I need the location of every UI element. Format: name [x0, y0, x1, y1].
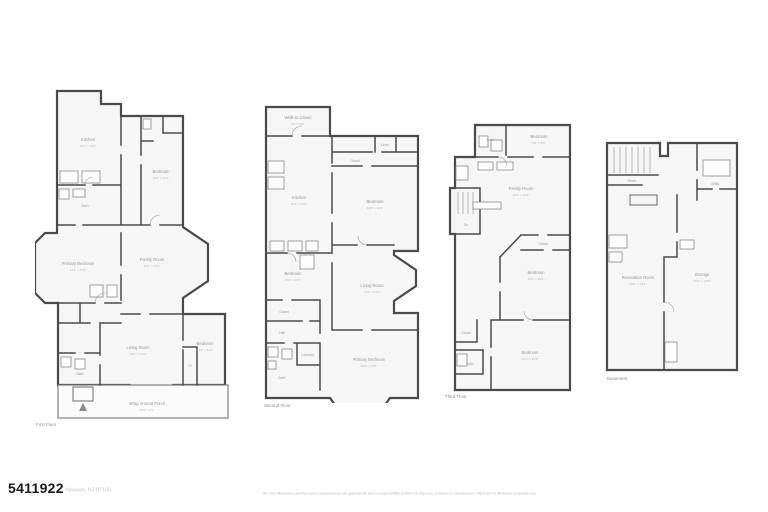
room-dims-porch: 32'0" x 6'4": [139, 408, 154, 412]
room-label-hall: Hall: [279, 331, 285, 335]
room-label-stairs3: Dn: [464, 223, 468, 227]
room-dims-bedroom-top3: 9'2" x 8'6": [532, 141, 546, 145]
room-label-laundry: Laundry: [302, 353, 315, 357]
room-label-utility: Utility: [711, 182, 720, 186]
room-dims-bedroom-l: 9'6" x 10'2": [285, 278, 300, 282]
room-label-porch: Wrap Around Porch: [129, 401, 166, 406]
disclaimer-text: All room dimensions and floor plan measu…: [263, 492, 513, 496]
floorplan-sheet: Kitchen 12'4" x 11'8" Bedroom 11'6" x 12…: [0, 0, 768, 512]
address-text: Newark, NJ 07106: [66, 487, 111, 493]
room-dims-living: 13'4" x 12'0": [130, 352, 147, 356]
room-dims-primary: 14'1" x 11'3": [70, 268, 87, 272]
room-label-closet2: Closet: [279, 310, 289, 314]
room-dims-kitchen: 12'4" x 11'8": [80, 144, 97, 148]
room-label-living2: Living Room: [360, 283, 384, 288]
room-label-family3: Family Room: [509, 186, 534, 191]
room-dims-wic: 8'2" x 5'6": [291, 122, 305, 126]
room-label-closet: Cl: [188, 364, 191, 368]
mls-number: 5411922: [8, 480, 64, 496]
room-label-bedroom-mid: Bedroom: [528, 270, 546, 275]
room-dims-living2: 14'6" x 13'2": [364, 290, 381, 294]
room-label-linen: Linen: [381, 143, 389, 147]
room-label-family: Family Room: [140, 257, 165, 262]
room-label-storage: Storage: [695, 272, 710, 277]
room-label-bath: Bath: [82, 204, 89, 208]
room-label-closet-bl: Closet: [461, 331, 471, 335]
room-label-kitchen2: Kitchen: [292, 195, 307, 200]
room-label-stairs-b: Stairs: [628, 179, 637, 183]
room-label-bath3: Bath: [77, 372, 84, 376]
room-dims-bedroom-br: 10'8" x 11'2": [197, 348, 214, 352]
room-label-bedroom-top3: Bedroom: [531, 134, 549, 139]
room-dims-bedroom-top: 11'6" x 12'2": [153, 176, 170, 180]
room-label-wic: Walk-In Closet: [284, 115, 312, 120]
room-dims-bedroom-mid: 11'2" x 10'6": [528, 277, 545, 281]
room-label-primary: Primary Bedroom: [62, 261, 95, 266]
room-label-bedroom-r: Bedroom: [367, 199, 385, 204]
room-dims-bedroom-bot: 12'4" x 10'8": [522, 357, 539, 361]
room-label-bedroom-br: Bedroom: [197, 341, 215, 346]
room-label-rec: Recreation Room: [622, 275, 655, 280]
room-label-bedroom-bot: Bedroom: [522, 350, 540, 355]
room-dims-storage: 26'2" x 12'8": [694, 279, 711, 283]
room-label-primary2: Primary Bedroom: [353, 357, 386, 362]
room-label-closet-strip: Closet: [350, 159, 360, 163]
room-label-bedroom-top: Bedroom: [153, 169, 171, 174]
room-label-closet-mid: Closet: [538, 242, 548, 246]
plan-basement: Stairs Utility Recreation Room 28'6" x 1…: [602, 132, 742, 374]
room-dims-bedroom-r: 11'8" x 12'4": [367, 206, 384, 210]
caption-first-floor: First Floor: [36, 422, 56, 427]
caption-second-floor: Second Floor: [264, 403, 291, 408]
caption-basement: Basement: [607, 376, 627, 381]
room-dims-family: 15'2" x 13'6": [144, 264, 161, 268]
room-label-living: Living Room: [126, 345, 150, 350]
room-label-bedroom-l: Bedroom: [285, 271, 303, 276]
room-dims-rec: 28'6" x 13'4": [630, 282, 647, 286]
plan-third-floor: Bath Bedroom 9'2" x 8'6" Family Room 16'…: [443, 122, 578, 394]
room-dims-kitchen2: 11'4" x 12'6": [291, 202, 308, 206]
room-label-bath-bl: Bath: [467, 362, 474, 366]
room-label-bath-top: Bath: [487, 138, 494, 142]
room-label-bath2: Bath: [279, 376, 286, 380]
room-dims-primary2: 15'0" x 11'6": [361, 364, 378, 368]
room-label-kitchen: Kitchen: [81, 137, 96, 142]
caption-third-floor: Third Floor: [445, 394, 467, 399]
plan-second-floor: Walk-In Closet 8'2" x 5'6" Kitchen 11'4"…: [262, 103, 422, 403]
plan-first-floor: Kitchen 12'4" x 11'8" Bedroom 11'6" x 12…: [35, 85, 231, 423]
room-dims-family3: 16'4" x 12'2": [513, 193, 530, 197]
